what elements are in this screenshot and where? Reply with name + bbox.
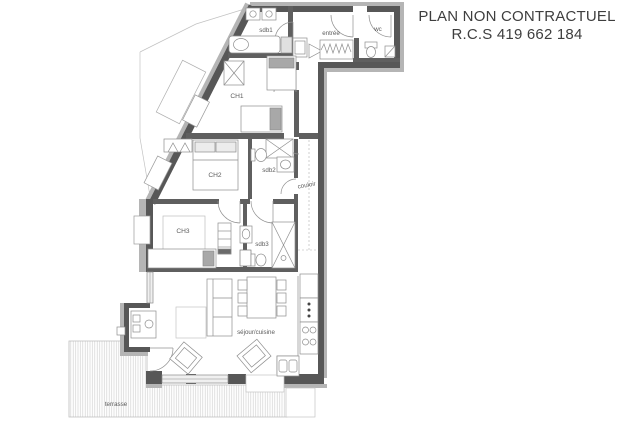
dashed-lines (298, 140, 318, 250)
room-label-couloir: couloir (297, 180, 316, 190)
room-label-sejour: séjour/cuisine (237, 329, 275, 336)
room-label-ch3: CH3 (176, 228, 190, 235)
room-label-wc: wc (373, 26, 382, 33)
room-label-terrasse: terrasse (105, 401, 128, 408)
floor-plan-svg: sdb1 entrée wc CH1 CH2 sdb2 couloir CH3 … (0, 0, 640, 432)
plan-canvas: PLAN NON CONTRACTUEL R.C.S 419 662 184 (0, 0, 640, 432)
room-label-entree: entrée (322, 30, 340, 37)
room-label-sdb2: sdb2 (262, 167, 276, 174)
room-label-sdb1: sdb1 (259, 27, 273, 34)
room-label-sdb3: sdb3 (255, 241, 269, 248)
room-label-ch1: CH1 (230, 93, 244, 100)
furniture-ch3 (148, 216, 231, 268)
furniture-entree (293, 38, 353, 59)
room-label-ch2: CH2 (208, 172, 222, 179)
furniture-wc (365, 42, 395, 58)
